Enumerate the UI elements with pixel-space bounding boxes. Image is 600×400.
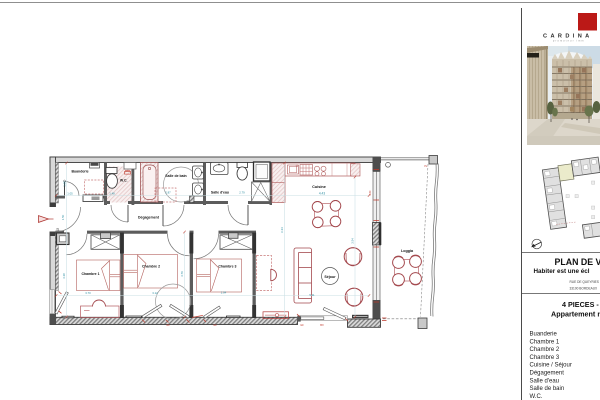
svg-text:Chambre 1: Chambre 1 bbox=[530, 339, 560, 345]
svg-text:3.70: 3.70 bbox=[85, 291, 91, 295]
svg-text:Chambre 2: Chambre 2 bbox=[530, 347, 560, 353]
svg-text:Salle de bain: Salle de bain bbox=[530, 386, 565, 392]
svg-text:Salle d'eau: Salle d'eau bbox=[530, 378, 560, 384]
svg-text:3.54: 3.54 bbox=[351, 238, 355, 244]
svg-text:2.60: 2.60 bbox=[369, 190, 372, 195]
svg-text:promoteur imm: promoteur imm bbox=[553, 40, 585, 43]
svg-text:6.34: 6.34 bbox=[280, 227, 284, 233]
svg-text:Chambre 3: Chambre 3 bbox=[218, 265, 236, 269]
svg-text:W.C.: W.C. bbox=[120, 179, 128, 183]
svg-text:Cuisine / Séjour: Cuisine / Séjour bbox=[530, 363, 572, 369]
svg-text:1.50: 1.50 bbox=[61, 214, 65, 220]
svg-text:2.79: 2.79 bbox=[239, 191, 245, 195]
svg-text:4 PIECES - B: 4 PIECES - B bbox=[562, 300, 600, 309]
svg-text:4.43: 4.43 bbox=[319, 191, 325, 195]
svg-text:CARDINA: CARDINA bbox=[543, 34, 593, 40]
svg-text:Loggia: Loggia bbox=[401, 249, 414, 253]
svg-text:Chambre 1: Chambre 1 bbox=[81, 272, 99, 276]
svg-text:BX: BX bbox=[320, 323, 324, 327]
svg-text:Chambre 3: Chambre 3 bbox=[530, 355, 560, 361]
svg-text:Salle de bain: Salle de bain bbox=[165, 174, 186, 178]
svg-text:GF: GF bbox=[300, 323, 304, 327]
svg-text:1.68: 1.68 bbox=[62, 181, 66, 187]
svg-text:Habiter est une écl: Habiter est une écl bbox=[534, 268, 590, 275]
svg-text:GF: GF bbox=[166, 323, 170, 327]
svg-text:Cuisine: Cuisine bbox=[312, 185, 326, 189]
svg-text:RUE DE QUEYRIES: RUE DE QUEYRIES bbox=[570, 280, 599, 284]
svg-text:1.05: 1.05 bbox=[67, 191, 73, 195]
svg-text:PLAN DE VE: PLAN DE VE bbox=[555, 257, 600, 267]
svg-text:Dégagement: Dégagement bbox=[138, 215, 160, 219]
svg-text:Chambre 2: Chambre 2 bbox=[142, 264, 160, 268]
svg-text:33100 BORDEAUX: 33100 BORDEAUX bbox=[570, 287, 599, 291]
svg-text:5.11: 5.11 bbox=[309, 293, 315, 297]
svg-text:Buanderie: Buanderie bbox=[71, 170, 88, 174]
svg-text:3.79: 3.79 bbox=[180, 271, 184, 277]
svg-text:3.12: 3.12 bbox=[152, 291, 158, 295]
svg-text:Dégagement: Dégagement bbox=[530, 371, 565, 377]
svg-text:W.C.: W.C. bbox=[530, 394, 543, 400]
svg-text:2.87: 2.87 bbox=[165, 191, 171, 195]
svg-text:3.38: 3.38 bbox=[62, 273, 66, 279]
svg-text:1.48: 1.48 bbox=[109, 192, 115, 196]
svg-text:Salle d'eau: Salle d'eau bbox=[211, 190, 229, 194]
svg-text:Séjour: Séjour bbox=[324, 275, 336, 279]
svg-text:2.84: 2.84 bbox=[221, 290, 227, 294]
svg-text:Buanderie: Buanderie bbox=[530, 332, 558, 338]
svg-text:Appartement n: Appartement n bbox=[551, 309, 600, 318]
svg-text:GF: GF bbox=[213, 323, 217, 327]
